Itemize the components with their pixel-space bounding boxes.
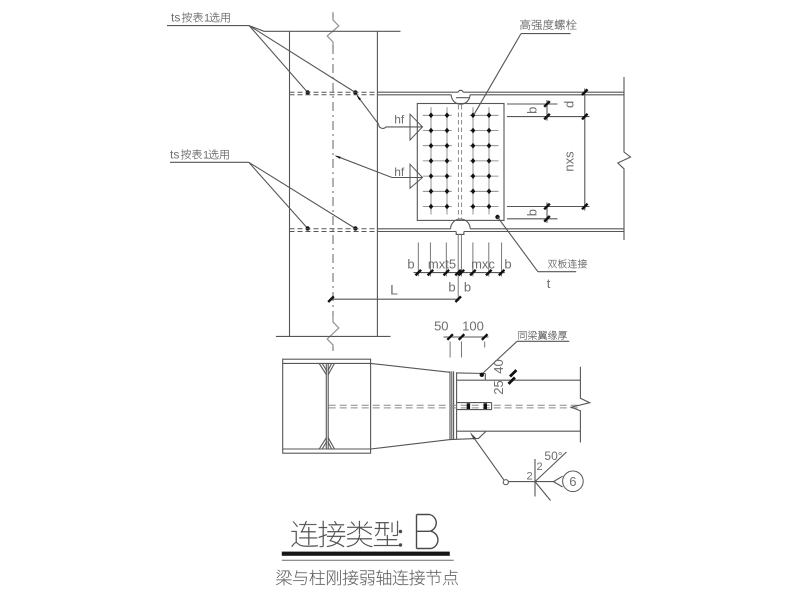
svg-text:1: 1: [204, 13, 210, 25]
svg-text:b: b: [407, 257, 414, 272]
svg-text:t: t: [547, 276, 551, 291]
svg-text:b: b: [448, 280, 455, 295]
svg-text:b: b: [504, 257, 511, 272]
svg-text:b: b: [464, 280, 471, 295]
svg-text:50: 50: [434, 319, 448, 334]
svg-text:40: 40: [491, 359, 506, 373]
svg-text:25: 25: [491, 380, 506, 394]
svg-text:ts: ts: [171, 11, 180, 25]
svg-text:hf: hf: [394, 113, 405, 127]
svg-text:mxt5: mxt5: [428, 257, 456, 272]
svg-text:mxc: mxc: [471, 257, 495, 272]
svg-text:100: 100: [462, 319, 484, 334]
svg-text:50°: 50°: [544, 449, 562, 463]
svg-text:nxs: nxs: [562, 151, 577, 172]
svg-text:hf: hf: [394, 165, 405, 179]
svg-text:ts: ts: [170, 148, 179, 162]
svg-text:b: b: [525, 107, 540, 114]
svg-text:1: 1: [203, 150, 209, 162]
svg-text:d: d: [562, 101, 577, 108]
svg-text:2: 2: [526, 471, 532, 483]
svg-text:b: b: [525, 209, 540, 216]
svg-text:2: 2: [536, 461, 542, 473]
svg-text:6: 6: [569, 474, 576, 489]
svg-text:L: L: [390, 282, 398, 298]
